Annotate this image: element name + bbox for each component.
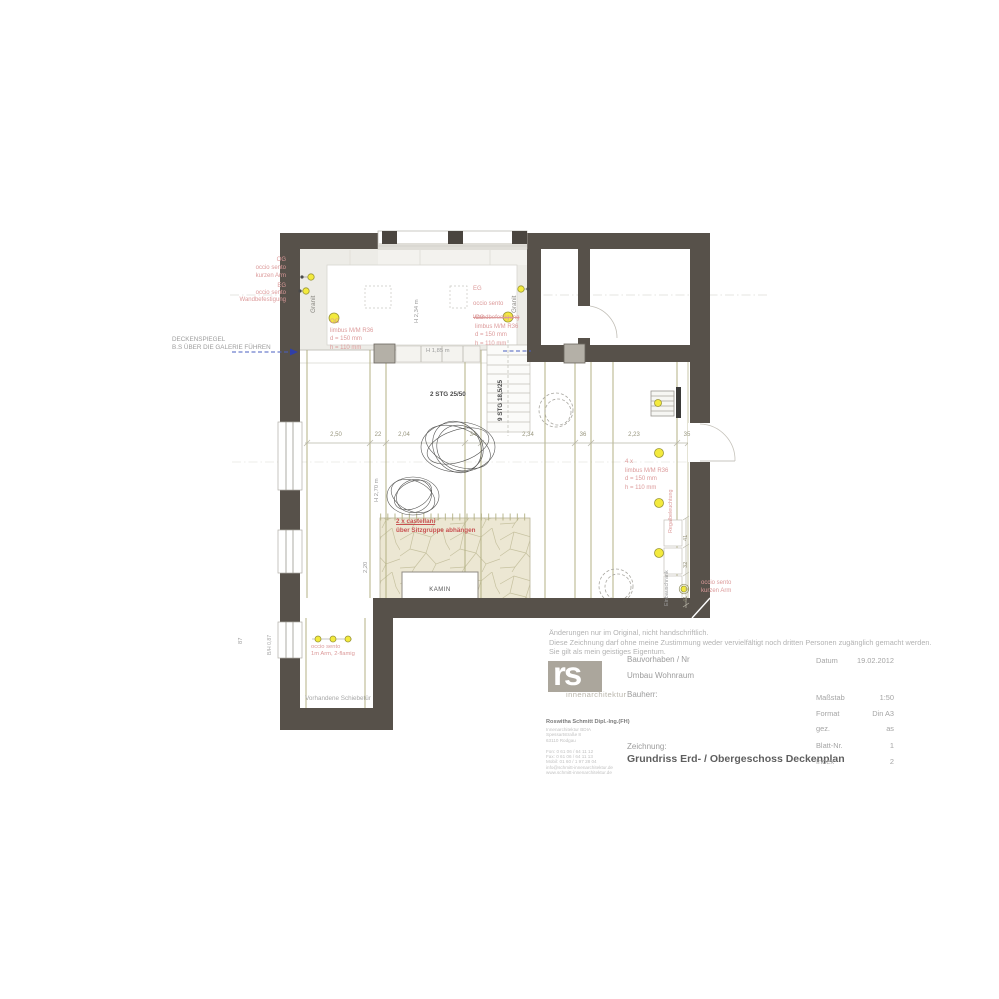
meta-row-blattnr: Blatt-Nr. 1 (816, 741, 894, 750)
meta-value: 1:50 (880, 693, 894, 702)
granit-left-label: Granit (310, 296, 318, 313)
granit-right-label: Granit (511, 296, 519, 313)
dim-right-0: 41 (682, 535, 690, 541)
h185-label: H 1,85 m (426, 347, 450, 355)
round-ceiling-elements (539, 393, 633, 603)
castellani-note-line2: über Sitzgruppe abhängen (396, 527, 475, 535)
og-limbus-left-note: OG limbus M/M R36 d = 150 mm h = 110 mm (330, 318, 373, 352)
meta-label: Datum (816, 656, 838, 665)
dim-row-2: 2,04 (398, 432, 410, 438)
h234-label: H 2,34 m (413, 299, 421, 323)
dim-right-1: 32 (682, 562, 690, 568)
meta-row-gez: gez. as (816, 724, 894, 733)
room-door-arc (590, 306, 617, 338)
limbus-4x-note: 4 x limbus M/M R36 d = 150 mm h = 110 mm (625, 458, 668, 492)
zeichnung-label: Zeichnung: (627, 742, 667, 751)
bauvorhaben-label: Bauvorhaben / Nr (627, 655, 690, 664)
meta-row-index: Index 2 (816, 757, 894, 766)
drawing-title: Grundriss Erd- / Obergeschoss Deckenplan (627, 753, 845, 765)
meta-row-datum: Datum 19.02.2012 (816, 656, 894, 665)
og-limbus-right-note: OG limbus M/M R36 d = 150 mm h = 110 mm (475, 314, 518, 348)
meta-value: as (886, 724, 894, 733)
einbauschrank-label: Einbauschrank (663, 570, 671, 606)
h270-label: H 2,70 m (373, 478, 381, 502)
meta-label: Blatt-Nr. (816, 741, 843, 750)
meta-row-format: Format Din A3 (816, 709, 894, 718)
drawing-sheet: DECKENSPIEGEL B.S ÜBER DIE GALERIE FÜHRE… (0, 0, 999, 999)
meta-label: Index (816, 757, 834, 766)
bauherr-label: Bauherr: (627, 690, 658, 699)
right-wall-door (688, 423, 735, 462)
meta-value: 19.02.2012 (857, 656, 894, 665)
castellani-note-line1: 2 x castellani (396, 518, 435, 526)
sento-2flamig-note: occio sento 1m Arm, 2-flamig (311, 644, 355, 659)
logo-subtitle: innenarchitektur (566, 690, 626, 699)
firm-details: Innenarchitektur BDIA Spessartstraße 8 6… (546, 727, 613, 776)
bauvorhaben-value: Umbau Wohnraum (627, 671, 694, 680)
dimension-line (304, 440, 691, 446)
stg9-label: 9 STG 18,5/25 (497, 380, 505, 421)
eg-mid-line1: EG (473, 286, 519, 293)
left-wall-windows (278, 422, 302, 658)
dim-220-label: 2,20 (362, 562, 370, 573)
meta-value: 1 (890, 741, 894, 750)
vorhandene-label: Vorhandene Schiebetür (296, 695, 380, 703)
eg-sento-note: EG occio sento Wandbefestigung (196, 283, 286, 305)
logo-text: rs (553, 655, 580, 693)
meta-value: 2 (890, 757, 894, 766)
sketch-furniture (386, 412, 497, 520)
dim-row-3: 34 (470, 432, 477, 438)
meta-label: gez. (816, 724, 830, 733)
bh087-label: B/H 0,87 (266, 635, 274, 655)
meta-label: Maßstab (816, 693, 845, 702)
top-window-band (378, 231, 527, 250)
kamin-label: KAMIN (418, 586, 462, 594)
dim-87-label: 87 (237, 638, 245, 644)
dim-right-2: 41 (682, 596, 690, 602)
dim-row-1: 22 (375, 432, 382, 438)
floor-plan-graphics (0, 0, 999, 999)
meta-label: Format (816, 709, 839, 718)
og-sento-note: OG occio sento kurzen Arm (210, 256, 286, 281)
stair-9-steps (487, 340, 530, 436)
deckenspiegel-note: DECKENSPIEGEL B.S ÜBER DIE GALERIE FÜHRE… (172, 336, 312, 351)
disclaimer-text: Änderungen nur im Original, nicht handsc… (549, 628, 932, 657)
stg2-label: 2 STG 25/50 (430, 391, 466, 399)
dim-row-6: 2,23 (628, 432, 640, 438)
meta-row-massstab: Maßstab 1:50 (816, 693, 894, 702)
sento-kurz-note: occio sento kurzen Arm (701, 580, 731, 595)
dim-row-7: 35 (684, 432, 691, 438)
firm-name: Roswitha Schmitt Dipl.-Ing.(FH) (546, 719, 630, 725)
regal-note: Regalbeleuchtung (667, 490, 675, 533)
dim-row-4: 2,34 (522, 432, 534, 438)
dim-row-0: 2,50 (330, 432, 342, 438)
meta-value: Din A3 (872, 709, 894, 718)
dim-row-5: 36 (580, 432, 587, 438)
